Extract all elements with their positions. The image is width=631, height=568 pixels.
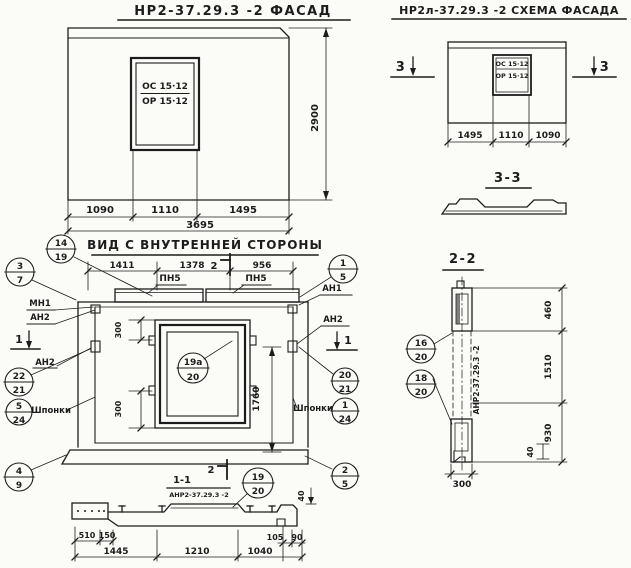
callout-19a-20: 19а 20	[177, 341, 232, 383]
scheme-bottom-dims: 1495 1110 1090	[445, 95, 569, 147]
callout-top: 1	[340, 259, 346, 269]
scheme-window-mark-top: ОС 15·12	[495, 60, 528, 68]
section-2-2: 2-2 АНР2-37.29.3 -2 16 20 18 20	[406, 252, 567, 490]
label-an2-upper-left: АН2	[27, 310, 95, 324]
callout-bottom: 5	[342, 480, 348, 490]
dim-1110: 1110	[151, 205, 179, 216]
leader-line	[434, 333, 452, 344]
callout-bottom: 21	[13, 386, 26, 396]
callout-top: 14	[55, 239, 68, 249]
dim-1090: 1090	[535, 131, 560, 141]
dim-2900: 2900	[310, 104, 321, 132]
pn5-label: ПН5	[159, 274, 180, 284]
section3-marker-right: 3	[573, 57, 616, 77]
dim-1210: 1210	[184, 547, 209, 557]
section1-marker-left: 1	[11, 331, 40, 349]
section22-axis-label: АНР2-37.29.3 -2	[472, 346, 481, 415]
callout-16-20: 16 20	[406, 333, 452, 363]
facade-bottom-dims: 1090 1110 1495 3695	[65, 150, 292, 234]
leader-line	[67, 397, 95, 410]
dim-300-top: 300	[114, 321, 123, 338]
dim-930: 930	[544, 424, 554, 443]
dim-956: 956	[253, 261, 272, 271]
callout-19-20: 19 20	[233, 468, 274, 507]
callout-top: 18	[415, 374, 428, 384]
callout-bottom: 24	[339, 415, 352, 425]
section33-title: 3-3	[494, 171, 522, 186]
top-tab	[457, 281, 464, 288]
dim-300: 300	[453, 480, 472, 490]
scheme-title: НР2л-37.29.3 -2 СХЕМА ФАСАДА	[399, 4, 619, 17]
section3-label: 3	[396, 60, 407, 75]
dim-300-bottom: 300	[114, 400, 123, 417]
dim-1495: 1495	[229, 205, 257, 216]
dim-1495: 1495	[457, 131, 482, 141]
callout-top: 3	[17, 262, 23, 272]
leader-line	[299, 347, 333, 374]
window-opening	[155, 320, 250, 428]
section1-label: 1	[15, 333, 23, 346]
section2-marker-bottom: 2	[208, 460, 227, 479]
section3-marker-left: 3	[391, 57, 434, 77]
facade-panel-outline	[68, 28, 289, 200]
leader-line	[305, 456, 332, 469]
section2-label: 2	[211, 261, 218, 272]
label-mn1: МН1	[27, 299, 93, 310]
callout-top: 4	[16, 467, 22, 477]
callout-bottom: 9	[16, 481, 22, 491]
section22-dims: 460 1510 930 40 300	[445, 285, 567, 490]
callout-bottom: 24	[13, 416, 26, 426]
facade-title: НР2-37.29.3 -2 ФАСАД	[134, 4, 332, 19]
label-an2-mid-left: АН2	[33, 348, 91, 368]
callout-18-20: 18 20	[406, 370, 452, 424]
leader-line	[433, 379, 452, 424]
callout-top: 20	[339, 371, 352, 381]
facade-height-dim: 2900	[289, 28, 332, 200]
drawing-svg: НР2-37.29.3 -2 ФАСАД ОС 15·12 ОР 15·12 1…	[0, 0, 631, 568]
bottom-hook	[454, 451, 471, 462]
facade-scheme: НР2л-37.29.3 -2 СХЕМА ФАСАДА ОС 15·12 ОР…	[391, 4, 626, 147]
lintel-label-pn5-left: ПН5	[148, 274, 186, 293]
inner-panel	[62, 289, 308, 464]
section2-marker-top: 2	[211, 254, 230, 275]
shponki-label: Шпонки	[31, 406, 71, 416]
section11-subtitle: АНР2-37.29.3 -2	[169, 491, 229, 499]
callout-22-21: 22 21	[4, 349, 90, 396]
lintel-strip-right	[206, 289, 299, 302]
shponki-label: Шпонки	[293, 404, 333, 414]
callout-4-9: 4 9	[4, 455, 66, 491]
dim-1110: 1110	[498, 131, 523, 141]
label-an2-right: АН2	[297, 315, 349, 344]
section22-profile	[451, 277, 472, 470]
window-frame	[160, 325, 245, 423]
callout-top: 2	[342, 466, 348, 476]
dim-90: 90	[291, 533, 303, 542]
callout-bottom: 5	[340, 273, 346, 283]
callout-top: 19а	[184, 358, 203, 368]
inner-window	[149, 320, 256, 428]
lintel-strip-left	[115, 289, 203, 302]
lintel-label-pn5-right: ПН5	[233, 274, 271, 293]
section2-label: 2	[208, 465, 215, 476]
scheme-window-mark-bottom: ОР 15·12	[495, 72, 528, 80]
callout-bottom: 21	[339, 385, 352, 395]
facade-view: НР2-37.29.3 -2 ФАСАД ОС 15·12 ОР 15·12 1…	[65, 4, 350, 234]
callout-1-24-shponki: Шпонки 1 24	[293, 398, 359, 425]
section3-label: 3	[600, 60, 611, 75]
dim-1040: 1040	[247, 547, 272, 557]
callout-bottom: 20	[415, 353, 428, 363]
facade-window-mark-top: ОС 15·12	[142, 82, 188, 92]
dim-1445: 1445	[103, 547, 128, 557]
section1-marker-right: 1	[327, 332, 357, 350]
section22-title: 2-2	[449, 252, 477, 267]
window-sash	[167, 332, 238, 416]
leader-line	[31, 455, 66, 470]
hinge-tab	[149, 386, 155, 395]
dim-1760: 1760	[252, 386, 262, 411]
an2-label: АН2	[35, 358, 55, 368]
dim-1411: 1411	[109, 261, 134, 271]
inner-height-dim: 1760	[252, 347, 281, 452]
section11-title: 1-1	[173, 475, 191, 486]
callout-top: 1	[342, 401, 348, 411]
section33-profile	[442, 199, 566, 214]
dim-3695: 3695	[186, 220, 214, 231]
dim-1090: 1090	[86, 205, 114, 216]
callout-top: 22	[13, 372, 26, 382]
dim-105: 105	[267, 533, 284, 542]
inner-title: ВИД С ВНУТРЕННЕЙ СТОРОНЫ	[87, 237, 323, 252]
profile-outline	[108, 504, 297, 526]
callout-bottom: 20	[252, 487, 265, 497]
callout-bottom: 20	[415, 388, 428, 398]
an2-label: АН2	[30, 313, 50, 323]
an2-label: АН2	[323, 315, 343, 325]
hinge-tab	[149, 336, 155, 345]
section-1-1: 2 1-1 АНР2-37.29.3 -2 19 20	[72, 460, 316, 561]
facade-window-mark-bottom: ОР 15·12	[142, 97, 188, 107]
dim-40: 40	[297, 490, 306, 502]
callout-top: 5	[16, 402, 22, 412]
callout-top: 19	[252, 473, 265, 483]
leader-line	[32, 280, 76, 300]
dim-1378: 1378	[179, 261, 204, 271]
callout-bottom: 20	[187, 373, 200, 383]
section1-label: 1	[344, 334, 352, 347]
section-3-3: 3-3	[442, 171, 566, 214]
hinge-tab	[250, 336, 256, 345]
an1-label: АН1	[322, 284, 342, 294]
leader-line	[233, 494, 247, 507]
dim-40: 40	[526, 446, 535, 458]
inner-view: 14 19 ВИД С ВНУТРЕННЕЙ СТОРОНЫ 1411 1378…	[4, 235, 359, 491]
blueprint-canvas: НР2-37.29.3 -2 ФАСАД ОС 15·12 ОР 15·12 1…	[0, 0, 631, 568]
callout-bottom: 19	[55, 253, 68, 263]
leader-line	[204, 341, 232, 359]
callout-5-24-shponki: 5 24 Шпонки	[5, 397, 95, 426]
end-notch	[277, 519, 285, 526]
callout-3-7: 3 7	[5, 258, 76, 300]
pn5-label: ПН5	[245, 274, 266, 284]
dim-460: 460	[544, 301, 554, 320]
dim-1510: 1510	[544, 354, 554, 379]
callout-bottom: 7	[17, 276, 23, 286]
dim-510: 510	[79, 531, 96, 540]
section11-profile	[72, 503, 297, 526]
callout-top: 16	[415, 339, 428, 349]
mn1-label: МН1	[29, 299, 51, 309]
dim-150: 150	[99, 531, 116, 540]
callout-2-5: 2 5	[305, 456, 359, 490]
